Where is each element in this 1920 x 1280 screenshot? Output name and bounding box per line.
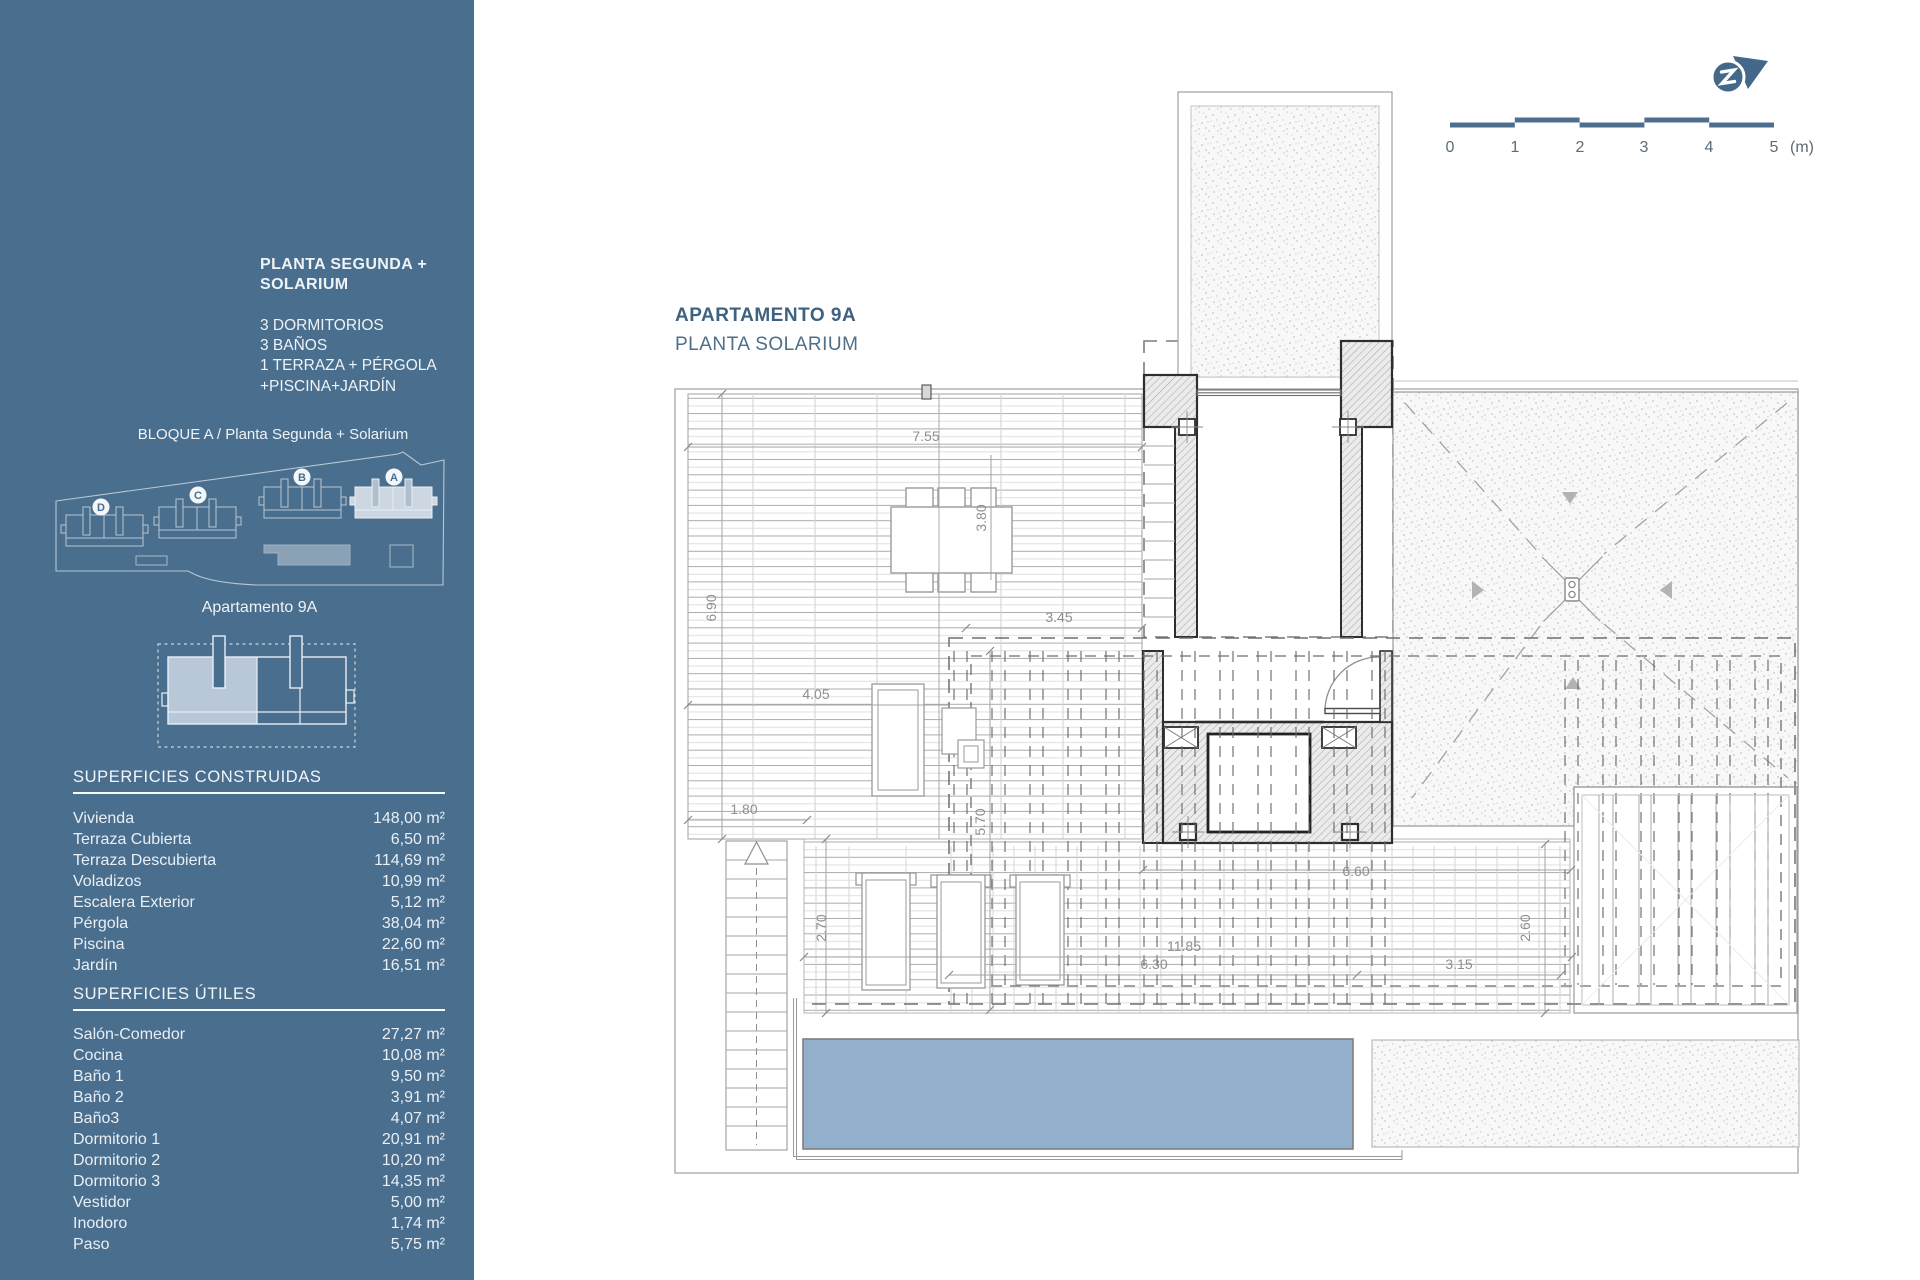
svg-text:3.45: 3.45: [1045, 609, 1072, 625]
svg-text:2.60: 2.60: [1517, 914, 1533, 941]
svg-text:7.55: 7.55: [912, 428, 939, 444]
svg-text:6.90: 6.90: [703, 594, 719, 621]
svg-text:3.80: 3.80: [973, 504, 989, 531]
svg-text:C: C: [194, 490, 202, 502]
svg-text:A: A: [390, 472, 398, 484]
svg-text:D: D: [97, 502, 105, 514]
svg-text:1: 1: [1511, 139, 1520, 156]
svg-text:2: 2: [1576, 139, 1585, 156]
svg-text:0: 0: [1446, 139, 1455, 156]
svg-text:11.85: 11.85: [1167, 938, 1201, 954]
svg-text:5: 5: [1770, 139, 1779, 156]
svg-text:2.70: 2.70: [813, 914, 829, 941]
svg-text:5.70: 5.70: [972, 808, 988, 835]
svg-text:3: 3: [1640, 139, 1649, 156]
svg-text:6.60: 6.60: [1342, 863, 1369, 879]
svg-text:B: B: [298, 472, 306, 484]
svg-text:1.80: 1.80: [730, 801, 757, 817]
svg-text:4: 4: [1705, 139, 1714, 156]
svg-text:4.05: 4.05: [802, 686, 829, 702]
svg-text:3.15: 3.15: [1445, 956, 1472, 972]
svg-text:6.30: 6.30: [1140, 956, 1167, 972]
svg-text:(m): (m): [1790, 139, 1814, 156]
